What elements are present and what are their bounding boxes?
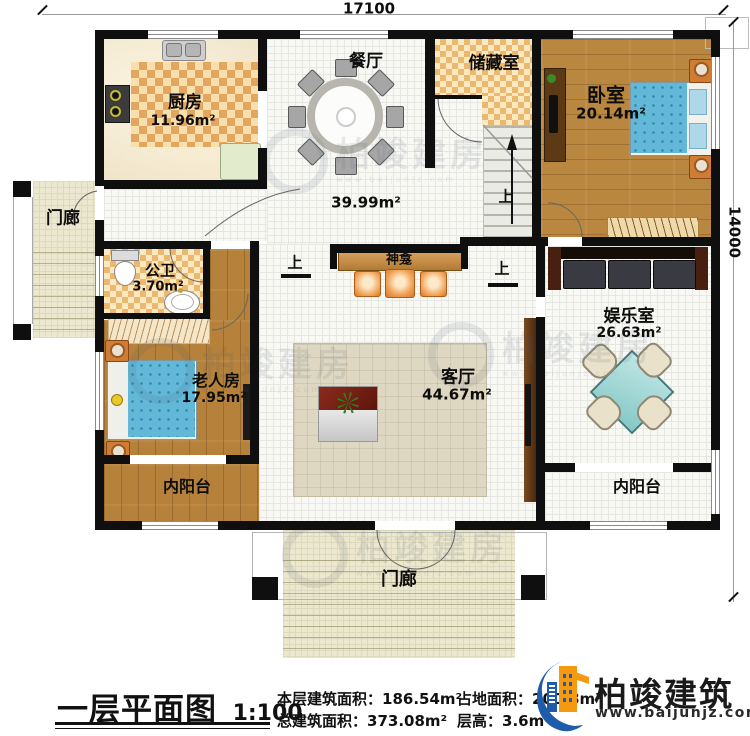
desk-plant <box>547 74 556 83</box>
wall <box>434 95 482 99</box>
wall <box>258 39 267 91</box>
stat-label: 层高： <box>457 712 502 730</box>
brand-logo-icon <box>537 658 593 732</box>
room-label-bedroom: 卧室 <box>587 87 625 106</box>
room-area-entertainment: 26.63m² <box>596 326 661 340</box>
stat-value: 186.54m² <box>382 690 462 708</box>
bed-pillow <box>689 89 707 115</box>
room-label-kitchen: 厨房 <box>168 95 202 112</box>
stove-burner <box>109 105 122 118</box>
wall <box>536 317 545 521</box>
wall <box>532 39 541 237</box>
wall <box>582 237 711 246</box>
living-room-tv <box>525 384 531 446</box>
shrine-cushion <box>420 271 447 297</box>
sofa-arm <box>548 247 561 290</box>
room-label-bathroom: 公卫 <box>145 264 175 279</box>
room-area-elder: 17.95m² <box>181 391 246 405</box>
porch-post <box>521 575 545 600</box>
window <box>95 256 104 296</box>
wall <box>95 241 211 249</box>
wall <box>95 180 267 189</box>
room-label-shrine: 神龛 <box>386 254 412 267</box>
stat-floor-area: 本层建筑面积：186.54m² <box>277 688 462 709</box>
shrine-cushion <box>385 269 415 298</box>
dimension-right-label: 14000 <box>727 206 742 258</box>
stat-total-area: 总建筑面积：373.08m² <box>277 710 447 731</box>
nightstand-lamp <box>694 158 709 173</box>
wall <box>104 313 210 319</box>
porch-left-steps <box>33 252 95 338</box>
title-underline <box>55 722 270 725</box>
door-opening <box>375 521 455 530</box>
shrine-cushion <box>354 271 381 297</box>
window <box>711 450 720 514</box>
room-label-balcony-right: 内阳台 <box>613 479 661 495</box>
room-label-porch-bottom: 门廊 <box>381 571 417 589</box>
window <box>711 57 720 149</box>
step-threshold <box>488 283 518 287</box>
room-label-elder: 老人房 <box>192 373 240 389</box>
table-plant <box>337 392 359 414</box>
wall <box>673 463 711 472</box>
title-underline <box>55 728 270 729</box>
coffee-table-glass <box>319 410 377 441</box>
porch-post <box>13 181 31 197</box>
stat-label: 本层建筑面积： <box>277 690 382 708</box>
sofa-arm <box>695 247 708 290</box>
shrine-niche-wall <box>461 253 468 269</box>
floor-storage-ext <box>482 96 532 125</box>
coffee-table <box>318 386 378 442</box>
window <box>590 521 667 530</box>
entertainment-sofa <box>548 247 708 290</box>
wall <box>104 455 130 464</box>
dining-table-center <box>336 107 356 127</box>
kitchen-sink-basin <box>166 43 182 57</box>
nightstand-lamp <box>110 343 125 358</box>
room-label-porch-left: 门廊 <box>46 211 80 228</box>
step-up-label: 上 <box>494 262 509 277</box>
sofa-cushion <box>653 260 696 289</box>
nightstand-lamp <box>694 62 709 77</box>
kitchen-fridge <box>220 143 261 180</box>
brand-website[interactable]: www.baijunjz.com <box>595 705 750 721</box>
stairs-up-label: 上 <box>498 190 513 205</box>
nightstand <box>105 340 129 362</box>
room-area-bathroom: 3.70m² <box>132 281 183 294</box>
bed-pillow <box>689 123 707 149</box>
room-label-balcony-left: 内阳台 <box>163 479 211 495</box>
stat-value: 373.08m² <box>367 712 447 730</box>
wall <box>545 463 575 472</box>
dining-chair <box>386 106 404 128</box>
room-label-dining: 餐厅 <box>349 54 383 71</box>
bed-lamp <box>111 394 123 406</box>
floor-elder-entry <box>210 249 250 320</box>
window <box>300 30 388 39</box>
toilet-tank <box>111 250 139 261</box>
bedroom-closet <box>607 217 699 239</box>
desk-monitor <box>549 95 558 133</box>
wall <box>460 237 548 246</box>
porch-post <box>13 324 31 340</box>
window <box>142 521 218 530</box>
sofa-cushion <box>608 260 651 289</box>
dimension-line-right <box>733 22 734 602</box>
kitchen-sink-basin <box>185 43 201 57</box>
room-area-bedroom: 20.14m² <box>576 107 646 122</box>
stat-floor-height: 层高：3.6m <box>457 710 544 731</box>
bathroom-sink-basin <box>171 294 194 310</box>
window <box>148 30 218 39</box>
door-opening <box>548 237 582 246</box>
stat-label: 总建筑面积： <box>277 712 367 730</box>
brand-logo <box>537 658 593 736</box>
dining-chair <box>288 106 306 128</box>
sofa-cushion <box>563 260 606 289</box>
sofa-back <box>561 247 695 259</box>
staircase <box>483 125 534 239</box>
porch-post <box>252 577 278 600</box>
room-label-living: 客厅 <box>441 370 475 387</box>
wall <box>536 246 545 297</box>
shrine-niche-wall <box>330 253 337 269</box>
step-up-label: 上 <box>287 256 302 271</box>
dimension-top-label: 17100 <box>343 2 395 17</box>
room-label-storage: 储藏室 <box>469 56 520 73</box>
window <box>573 30 673 39</box>
porch-left-railing <box>13 197 33 324</box>
stat-label: 占地面积： <box>457 690 532 708</box>
door-opening <box>95 186 104 220</box>
wall <box>425 39 435 168</box>
wall <box>203 241 210 315</box>
room-label-entertainment: 娱乐室 <box>604 309 655 326</box>
dining-chair <box>335 157 357 175</box>
room-area-living: 44.67m² <box>422 388 492 403</box>
floor-plan-canvas: 柏竣建房 www.baijunjz.com 柏竣建房 www.baijunjz.… <box>0 0 750 736</box>
window <box>95 352 104 430</box>
stove-burner <box>109 89 122 102</box>
floor-hallway <box>104 189 267 241</box>
wall <box>226 455 259 464</box>
room-area-hall: 39.99m² <box>331 196 401 211</box>
wall <box>250 241 259 458</box>
room-area-kitchen: 11.96m² <box>150 114 215 128</box>
step-threshold <box>281 274 311 278</box>
